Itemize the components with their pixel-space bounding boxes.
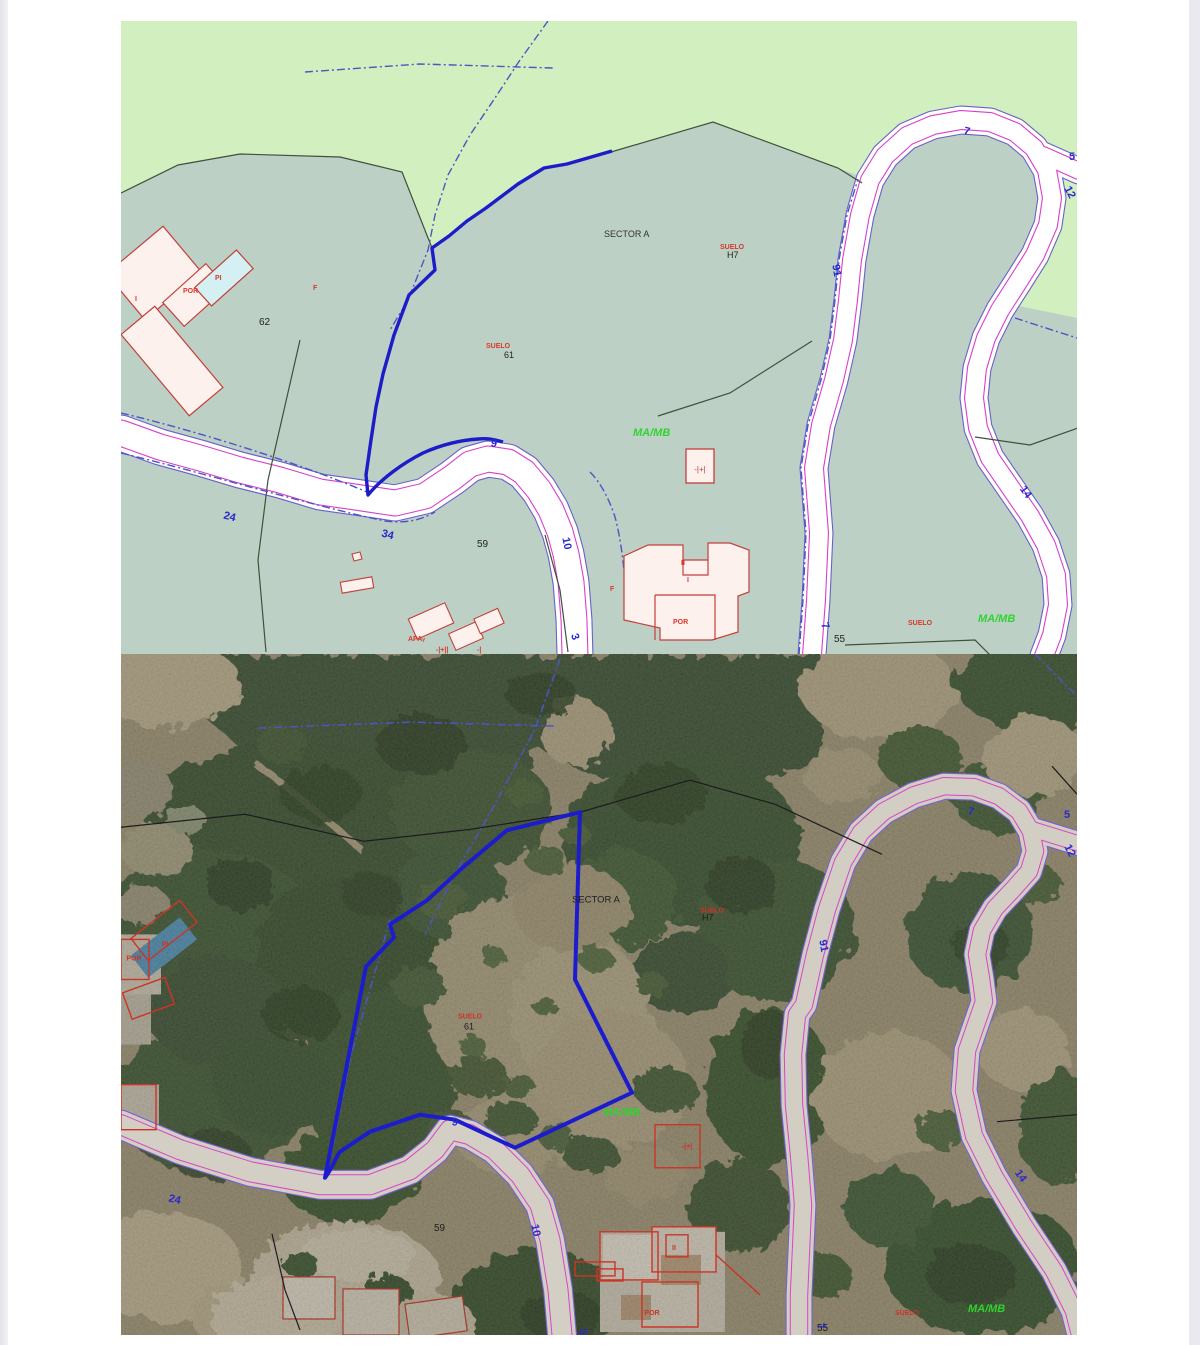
svg-text:91: 91	[829, 263, 843, 277]
svg-text:POR: POR	[183, 288, 198, 295]
svg-text:PI: PI	[162, 941, 169, 948]
svg-text:5: 5	[1069, 151, 1075, 163]
svg-text:61: 61	[464, 1022, 474, 1032]
svg-text:SECTOR A: SECTOR A	[572, 894, 620, 905]
svg-text:H7: H7	[727, 250, 739, 260]
svg-text:APAy: APAy	[408, 636, 425, 643]
svg-text:POR: POR	[673, 619, 688, 626]
svg-text:10: 10	[559, 536, 573, 550]
svg-text:-|+|: -|+|	[682, 1144, 692, 1151]
svg-text:MA/MB: MA/MB	[978, 613, 1015, 625]
svg-text:59: 59	[477, 539, 489, 550]
svg-text:SUELO: SUELO	[720, 244, 745, 251]
svg-text:II: II	[672, 1245, 676, 1252]
svg-text:I: I	[135, 296, 137, 303]
svg-text:61: 61	[504, 350, 514, 360]
svg-text:91: 91	[816, 939, 830, 953]
svg-text:-|+||: -|+||	[436, 647, 448, 654]
svg-text:SECTOR A: SECTOR A	[604, 229, 649, 239]
svg-text:-|+|: -|+|	[694, 465, 706, 474]
svg-text:MA/MB: MA/MB	[968, 1303, 1005, 1315]
svg-text:POR: POR	[644, 1310, 659, 1317]
svg-text:62: 62	[259, 317, 271, 328]
svg-text:SUELO: SUELO	[908, 620, 933, 627]
svg-text:MA/MB: MA/MB	[633, 427, 670, 439]
svg-text:F: F	[610, 586, 615, 593]
svg-text:I: I	[687, 577, 689, 584]
svg-text:II: II	[681, 560, 685, 567]
svg-text:SUELO: SUELO	[458, 1014, 483, 1021]
svg-text:F: F	[313, 285, 318, 292]
svg-text:59: 59	[434, 1223, 446, 1234]
svg-text:SUELO: SUELO	[486, 343, 511, 350]
svg-text:POR: POR	[126, 955, 141, 962]
svg-text:MA/MB: MA/MB	[603, 1107, 640, 1119]
svg-text:H7: H7	[702, 912, 714, 922]
svg-text:-|: -|	[477, 647, 481, 654]
svg-text:5: 5	[1064, 809, 1070, 821]
svg-text:SUELO: SUELO	[895, 1310, 920, 1317]
svg-text:10: 10	[528, 1223, 542, 1237]
svg-text:PI: PI	[215, 275, 222, 282]
svg-text:55: 55	[834, 634, 846, 645]
